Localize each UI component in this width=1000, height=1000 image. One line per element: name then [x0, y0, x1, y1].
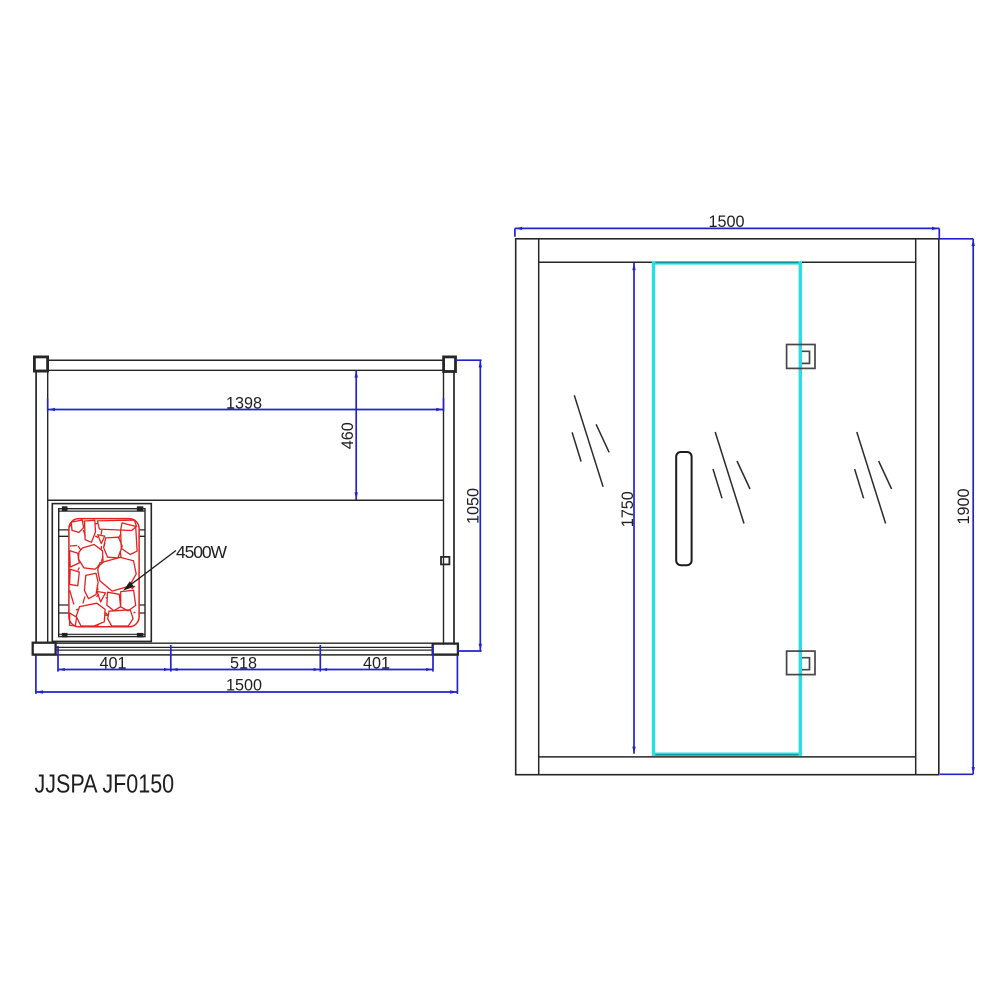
- svg-text:1398: 1398: [226, 394, 262, 412]
- svg-text:1050: 1050: [465, 488, 483, 524]
- svg-text:1500: 1500: [226, 677, 262, 695]
- svg-text:460: 460: [339, 422, 357, 449]
- svg-text:1900: 1900: [955, 488, 973, 524]
- svg-text:401: 401: [363, 654, 390, 672]
- svg-text:518: 518: [230, 654, 257, 672]
- svg-text:JJSPA JF0150: JJSPA JF0150: [35, 771, 175, 799]
- svg-text:401: 401: [99, 654, 126, 672]
- svg-text:4500W: 4500W: [176, 542, 227, 562]
- svg-text:1750: 1750: [619, 491, 637, 527]
- svg-text:1500: 1500: [708, 213, 744, 231]
